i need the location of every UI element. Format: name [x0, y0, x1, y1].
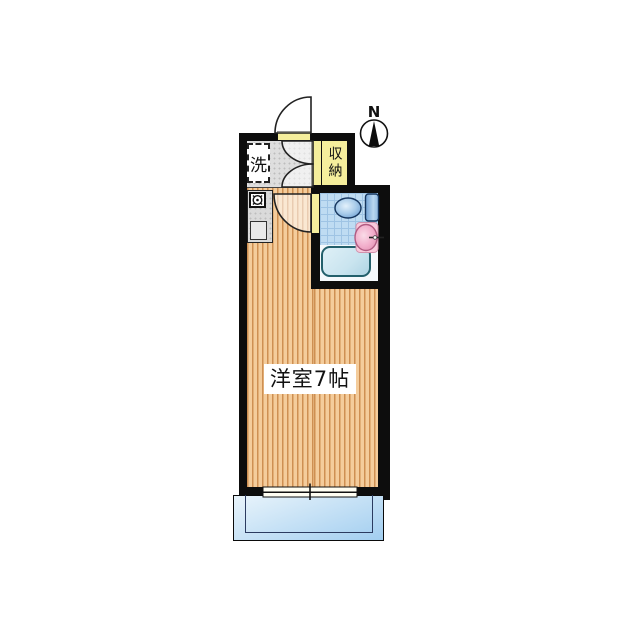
plan-symbols-overlay: N	[0, 0, 640, 640]
floor-plan-page: { "plan": { "room_label": "洋室7帖", "close…	[0, 0, 640, 640]
north-label: N	[368, 103, 381, 121]
wash-basin-icon	[355, 223, 384, 253]
stove-burner-icon	[253, 196, 262, 205]
closet-door-swing-bottom	[282, 164, 313, 187]
north-compass: N	[361, 103, 388, 147]
closet-door-swing-top	[282, 141, 313, 164]
bathroom-door-swing	[274, 194, 311, 232]
toilet-icon	[335, 194, 379, 221]
entrance-door-swing	[275, 97, 311, 133]
sliding-window	[263, 484, 357, 501]
